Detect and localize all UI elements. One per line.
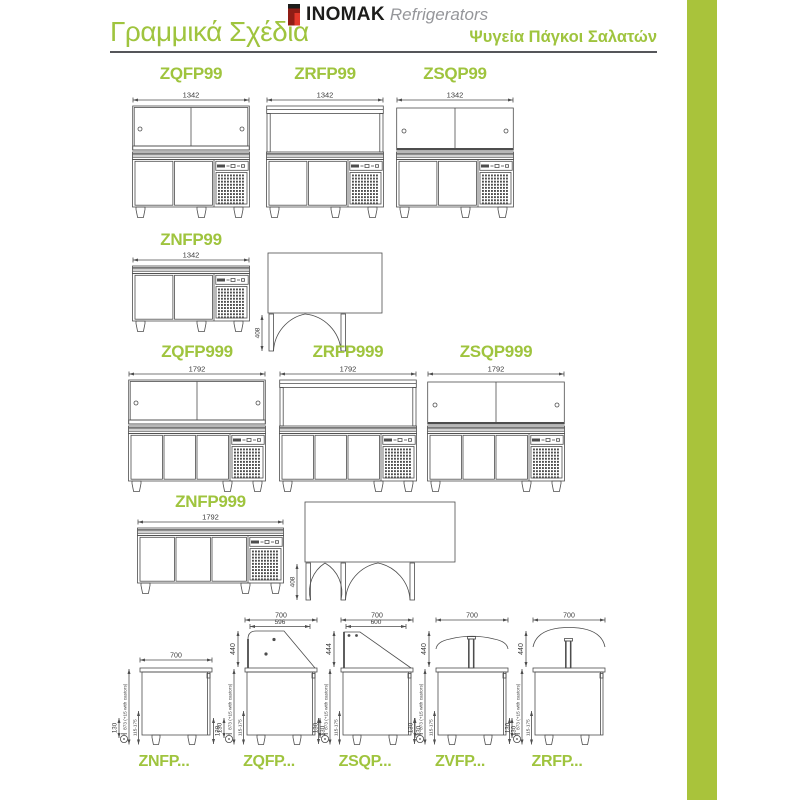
castor-icon bbox=[225, 734, 232, 743]
dim-label: 408 bbox=[255, 327, 262, 338]
inomak-logo: INOMAK Refrigerators bbox=[287, 4, 488, 26]
dim-label: 130 bbox=[504, 722, 511, 733]
page-subtitle: Ψυγεία Πάγκοι Σαλατών bbox=[380, 28, 657, 47]
drawing-side-znfp: 700873 (+15 with castors)115-175130130 bbox=[108, 612, 220, 762]
logo-brand-text: INOMAK bbox=[306, 4, 385, 26]
dim-label: 873 (+15 with castors) bbox=[323, 683, 328, 730]
dim-label: 1792 bbox=[202, 513, 219, 522]
drawing-plan-3door: 408 bbox=[289, 500, 457, 604]
technical-drawing-svg: 1342 bbox=[132, 88, 250, 220]
drawing-front-zsqp99: 1342 bbox=[396, 88, 514, 220]
technical-drawing-svg: 1792 bbox=[137, 510, 284, 598]
technical-drawing-svg: 1792 bbox=[427, 362, 565, 494]
technical-drawing-svg: 408 bbox=[254, 251, 384, 355]
dim-label: 700 bbox=[466, 613, 478, 620]
inomak-logo-icon bbox=[287, 4, 301, 26]
model-label-zvfp-side: ZVFP... bbox=[404, 753, 516, 771]
dim-label: 1792 bbox=[189, 365, 206, 374]
castor-icon bbox=[120, 734, 127, 743]
castor-icon bbox=[321, 734, 328, 743]
model-label-zsqp99: ZSQP99 bbox=[396, 64, 514, 84]
dim-label: 115-175 bbox=[133, 719, 138, 736]
model-label-zqfp999: ZQFP999 bbox=[128, 342, 266, 362]
dim-label: 440 bbox=[421, 643, 428, 655]
dim-label: 115-175 bbox=[238, 719, 243, 736]
castor-icon bbox=[513, 734, 520, 743]
drawing-front-zrfp999: 1792 bbox=[279, 362, 417, 494]
model-label-zrfp999: ZRFP999 bbox=[279, 342, 417, 362]
dim-label: 1792 bbox=[488, 365, 505, 374]
dim-label: 115-175 bbox=[429, 719, 434, 736]
drawing-side-zrfp: 700440873 (+15 with castors)115-175130 bbox=[501, 612, 613, 762]
drawing-front-zqfp99: 1342 bbox=[132, 88, 250, 220]
drawing-front-zrfp99: 1342 bbox=[266, 88, 384, 220]
technical-drawing-svg: 700873 (+15 with castors)115-175130130 bbox=[108, 612, 220, 762]
logo-suffix-text: Refrigerators bbox=[390, 5, 488, 25]
dim-label: 130 bbox=[312, 722, 319, 733]
drawing-front-znfp999: 1792 bbox=[137, 510, 284, 598]
right-accent-bar bbox=[687, 0, 717, 800]
model-label-zrfp99: ZRFP99 bbox=[266, 64, 384, 84]
dim-label: 596 bbox=[275, 619, 286, 626]
dim-label: 1342 bbox=[317, 91, 334, 100]
model-label-zqfp99: ZQFP99 bbox=[132, 64, 250, 84]
dim-label: 440 bbox=[518, 643, 525, 655]
model-label-zrfp-side: ZRFP... bbox=[501, 753, 613, 771]
model-label-znfp99: ZNFP99 bbox=[132, 230, 250, 250]
dim-label: 873 (+15 with castors) bbox=[418, 683, 423, 730]
dim-label: 600 bbox=[371, 619, 382, 626]
technical-drawing-svg: 1342 bbox=[396, 88, 514, 220]
drawing-front-zsqp999: 1792 bbox=[427, 362, 565, 494]
page-title: Γραμμικά Σχέδια bbox=[110, 16, 309, 48]
dim-label: 1342 bbox=[183, 251, 200, 260]
header-rule bbox=[110, 51, 657, 53]
dim-label: 873 (+15 with castors) bbox=[122, 683, 127, 730]
drawing-side-zvfp: 700440873 (+15 with castors)115-17513013… bbox=[404, 612, 516, 762]
dim-label: 408 bbox=[290, 576, 297, 587]
dim-label: 873 (+15 with castors) bbox=[227, 683, 232, 730]
dim-label: 130 bbox=[407, 722, 414, 733]
dim-label: 1342 bbox=[447, 91, 464, 100]
dim-label: 700 bbox=[170, 653, 182, 660]
dim-label: 873 (+15 with castors) bbox=[515, 683, 520, 730]
technical-drawing-svg: 1792 bbox=[279, 362, 417, 494]
dim-label: 115-175 bbox=[526, 719, 531, 736]
castor-icon bbox=[416, 734, 423, 743]
dim-label: 700 bbox=[563, 613, 575, 620]
drawing-front-zqfp999: 1792 bbox=[128, 362, 266, 494]
dim-label: 130 bbox=[111, 722, 118, 733]
drawing-plan-2door: 408 bbox=[254, 251, 384, 355]
model-label-zsqp999: ZSQP999 bbox=[427, 342, 565, 362]
technical-drawing-svg: 700440873 (+15 with castors)115-175130 bbox=[501, 612, 613, 762]
dim-label: 115-175 bbox=[334, 719, 339, 736]
model-label-znfp999: ZNFP999 bbox=[137, 492, 284, 512]
dim-label: 130 bbox=[216, 722, 223, 733]
dim-label: 1792 bbox=[340, 365, 357, 374]
technical-drawing-svg: 1792 bbox=[128, 362, 266, 494]
catalog-page: Γραμμικά Σχέδια INOMAK Refrigerators Ψυγ… bbox=[0, 0, 800, 800]
drawing-front-znfp99: 1342 bbox=[132, 248, 250, 336]
model-label-znfp-side: ZNFP... bbox=[108, 753, 220, 771]
technical-drawing-svg: 408 bbox=[289, 500, 457, 604]
technical-drawing-svg: 700440873 (+15 with castors)115-17513013… bbox=[404, 612, 516, 762]
dim-label: 1342 bbox=[183, 91, 200, 100]
technical-drawing-svg: 1342 bbox=[132, 248, 250, 336]
technical-drawing-svg: 1342 bbox=[266, 88, 384, 220]
dim-label: 444 bbox=[326, 643, 333, 655]
dim-label: 440 bbox=[230, 643, 237, 655]
